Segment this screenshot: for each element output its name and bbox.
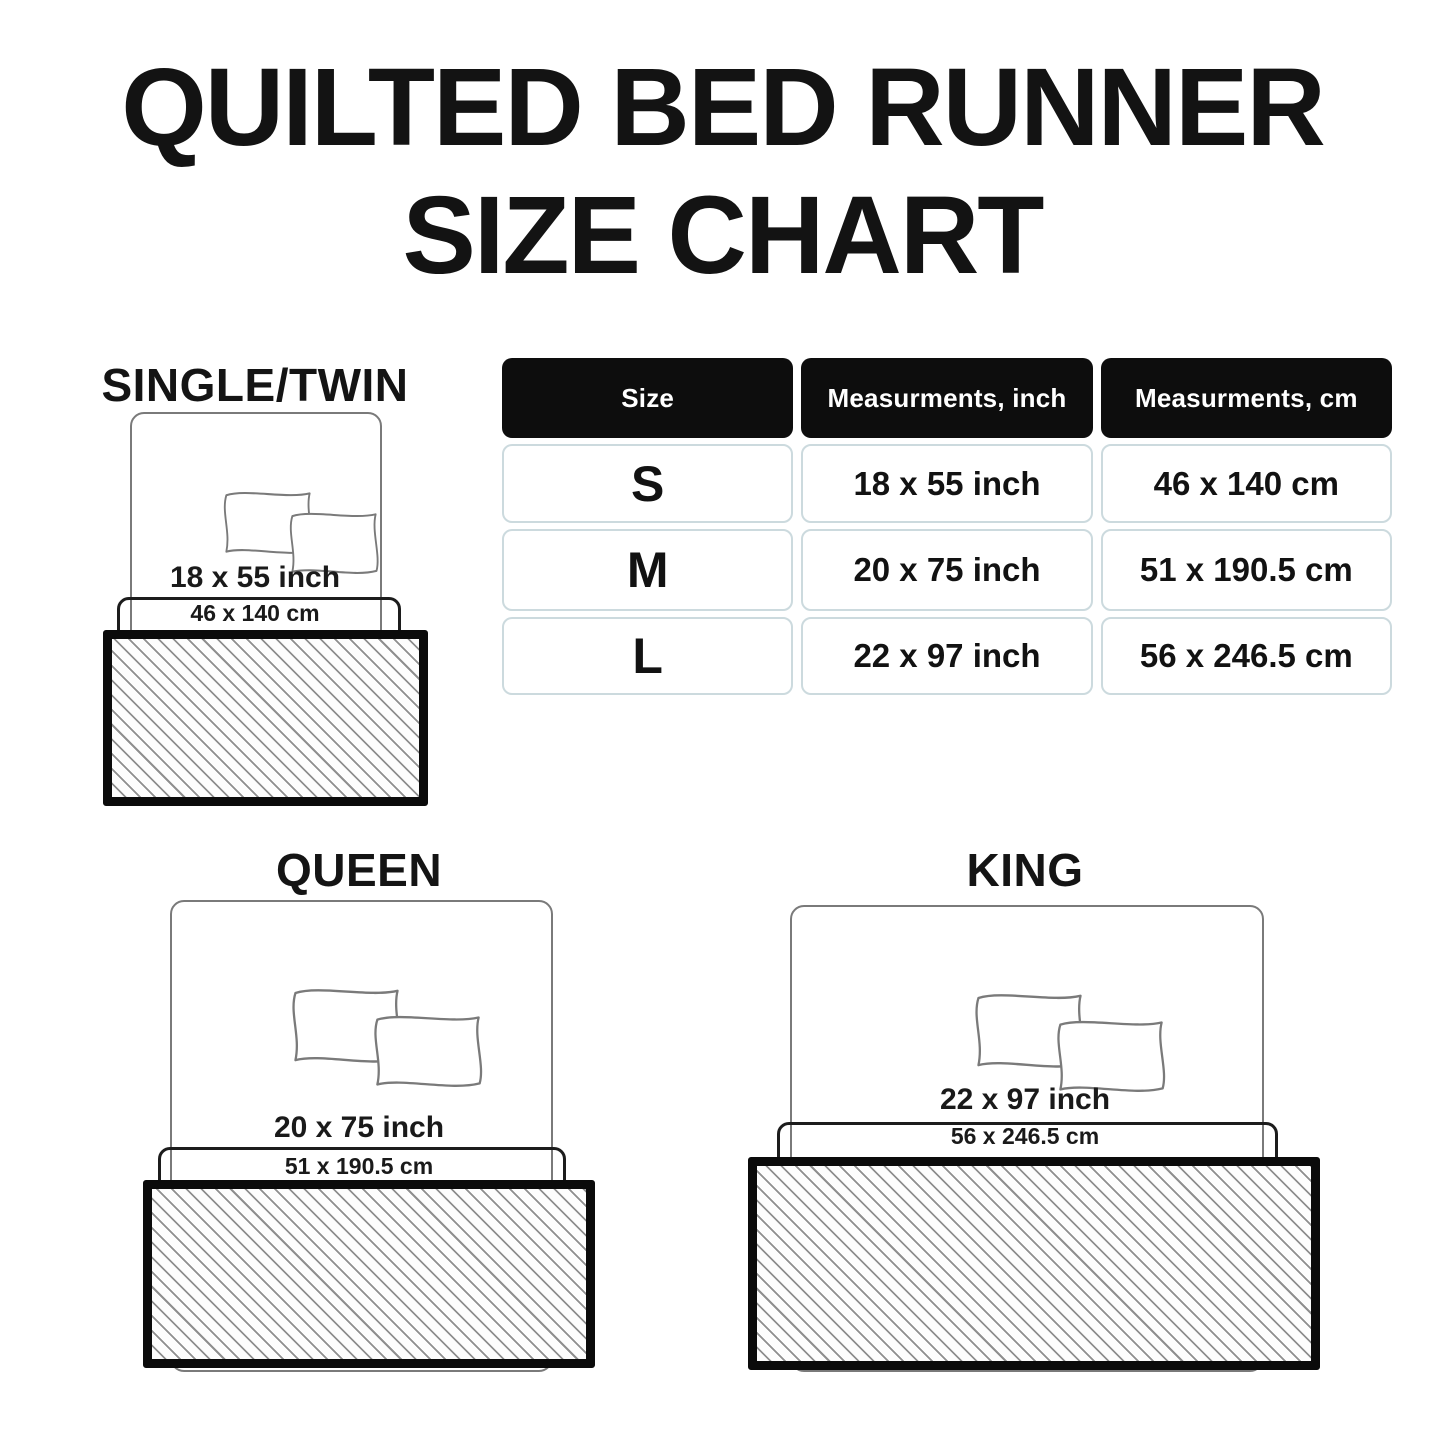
diagram-single-twin: SINGLE/TWIN 18 x 55 inch 46 x 140 cm [85, 358, 425, 808]
column-header-cm: Measurments, cm [1101, 358, 1392, 438]
size-chart-infographic: QUILTED BED RUNNER SIZE CHART Size Measu… [0, 0, 1445, 1445]
bed-runner-swatch [103, 630, 428, 806]
table-cell-inch-l: 22 x 97 inch [801, 617, 1092, 695]
runner-size-cm-label: 46 x 140 cm [85, 600, 425, 626]
diagram-single-twin-label: SINGLE/TWIN [85, 358, 425, 412]
runner-size-inch-label: 22 x 97 inch [745, 1084, 1305, 1116]
table-cell-size-m: M [502, 529, 793, 611]
table-cell-inch-s: 18 x 55 inch [801, 444, 1092, 523]
table-cell-cm-m: 51 x 190.5 cm [1101, 529, 1392, 611]
diagram-queen: QUEEN 20 x 75 inch 51 x 190.5 cm [141, 843, 577, 1383]
page-title-line1: QUILTED BED RUNNER [121, 46, 1324, 169]
table-cell-inch-m: 20 x 75 inch [801, 529, 1092, 611]
table-cell-size-s: S [502, 444, 793, 523]
bed-runner-swatch [748, 1157, 1320, 1370]
pillow-icon [366, 1009, 490, 1094]
runner-size-inch-label: 18 x 55 inch [85, 562, 425, 594]
size-table: Size Measurments, inch Measurments, cm S… [502, 358, 1392, 695]
diagram-queen-label: QUEEN [141, 843, 577, 897]
runner-size-cm-label: 51 x 190.5 cm [141, 1153, 577, 1179]
table-cell-cm-l: 56 x 246.5 cm [1101, 617, 1392, 695]
bed-runner-swatch [143, 1180, 595, 1368]
runner-size-cm-label: 56 x 246.5 cm [745, 1123, 1305, 1149]
table-cell-size-l: L [502, 617, 793, 695]
table-cell-cm-s: 46 x 140 cm [1101, 444, 1392, 523]
page-title-line2: SIZE CHART [403, 174, 1043, 297]
column-header-inch: Measurments, inch [801, 358, 1092, 438]
diagram-king: KING 22 x 97 inch 56 x 246.5 cm [745, 843, 1305, 1383]
diagram-king-label: KING [745, 843, 1305, 897]
column-header-size: Size [502, 358, 793, 438]
page-title: QUILTED BED RUNNER SIZE CHART [0, 44, 1445, 300]
runner-size-inch-label: 20 x 75 inch [141, 1112, 577, 1144]
